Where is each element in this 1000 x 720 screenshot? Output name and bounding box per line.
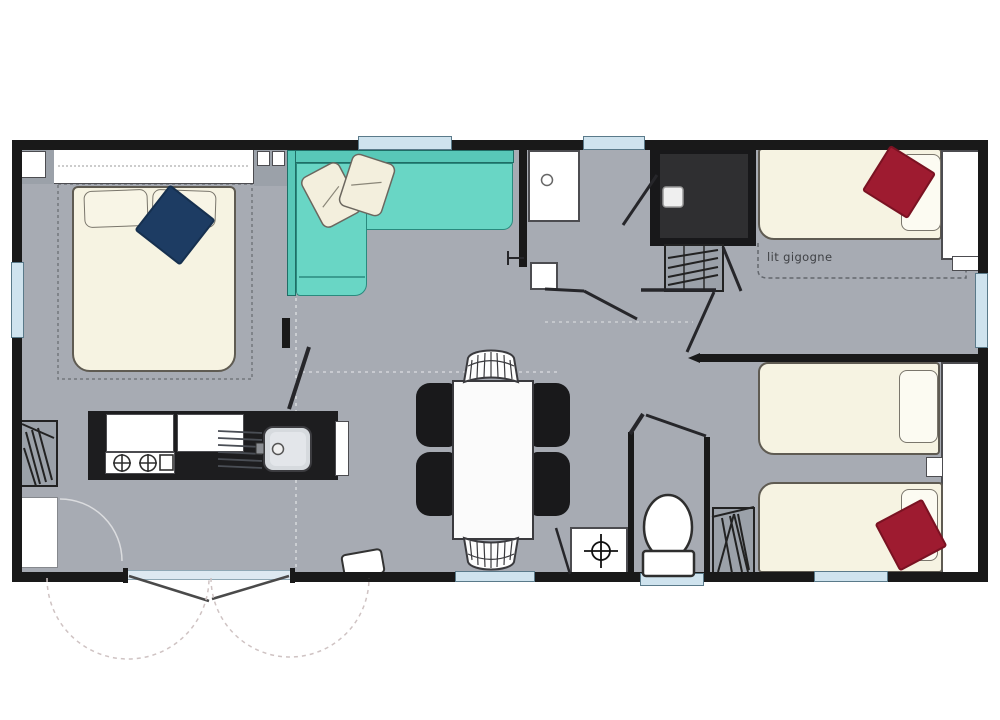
pillow-right	[151, 189, 216, 228]
pillow-bed2	[899, 370, 938, 443]
wall-top	[12, 140, 988, 150]
sofa-chaise	[296, 163, 367, 296]
wall-bottom-left	[12, 572, 127, 582]
bathroom-wall	[519, 146, 527, 267]
sofa-armrest	[287, 150, 296, 296]
entrance-door	[47, 576, 369, 659]
chair-2	[416, 452, 454, 516]
kitchen-wardrobe	[18, 420, 58, 487]
gas-hob	[105, 452, 175, 474]
fridge-cabinet	[18, 497, 58, 568]
bedroom-wall-stub	[282, 318, 290, 348]
pillow-left	[83, 189, 148, 228]
sofa-backrest	[287, 150, 514, 163]
hall-wardrobe	[664, 244, 724, 292]
door-jamb-left	[123, 568, 128, 583]
window-bottom-living	[455, 571, 535, 582]
shelf-box-2	[272, 151, 285, 166]
wc-wall-left	[628, 432, 634, 577]
window-top-living	[358, 136, 452, 150]
bedroom-wardrobe	[712, 507, 755, 577]
water-heater	[570, 527, 628, 575]
door-jamb-right	[290, 568, 295, 583]
worktop-1	[106, 414, 174, 452]
washbasin	[528, 150, 580, 222]
entrance-door-sill	[127, 570, 291, 580]
dining-table	[452, 380, 534, 540]
corner-cabinet	[20, 151, 46, 178]
pillow-bed3	[901, 489, 938, 561]
window-right	[975, 273, 988, 348]
floorplan-canvas: lit gigogne	[0, 0, 1000, 720]
wc-wall-right	[704, 437, 710, 577]
small-cabinet	[530, 262, 558, 290]
headboard-shelf	[52, 148, 254, 184]
wall-right	[978, 140, 988, 582]
chair-3	[532, 383, 570, 447]
chair-4	[532, 452, 570, 516]
window-bottom-wc	[640, 573, 704, 586]
chair-1	[416, 383, 454, 447]
window-left	[11, 262, 24, 338]
window-bottom-bedroom	[814, 571, 888, 582]
wall-left	[12, 140, 22, 582]
shelf-box-1	[257, 151, 270, 166]
worktop-2	[177, 414, 244, 452]
pillow-bed1	[901, 154, 941, 231]
shower-tray	[660, 154, 748, 238]
window-top-bath	[583, 136, 645, 150]
shelf-notch	[926, 457, 943, 477]
counter-end-panel	[335, 421, 349, 476]
bedroom-divider-wall	[700, 354, 985, 362]
trundle-bed-label: lit gigogne	[767, 250, 832, 264]
